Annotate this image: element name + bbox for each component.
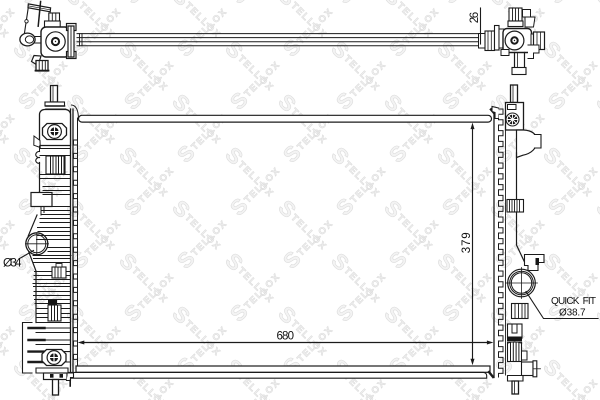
- svg-text:QUICK FIT: QUICK FIT: [551, 296, 596, 307]
- svg-text:26: 26: [469, 12, 481, 24]
- svg-text:680: 680: [277, 331, 295, 343]
- svg-text:Ø38.7: Ø38.7: [559, 308, 586, 319]
- svg-text:Ø34: Ø34: [3, 256, 22, 270]
- svg-text:379: 379: [461, 232, 473, 253]
